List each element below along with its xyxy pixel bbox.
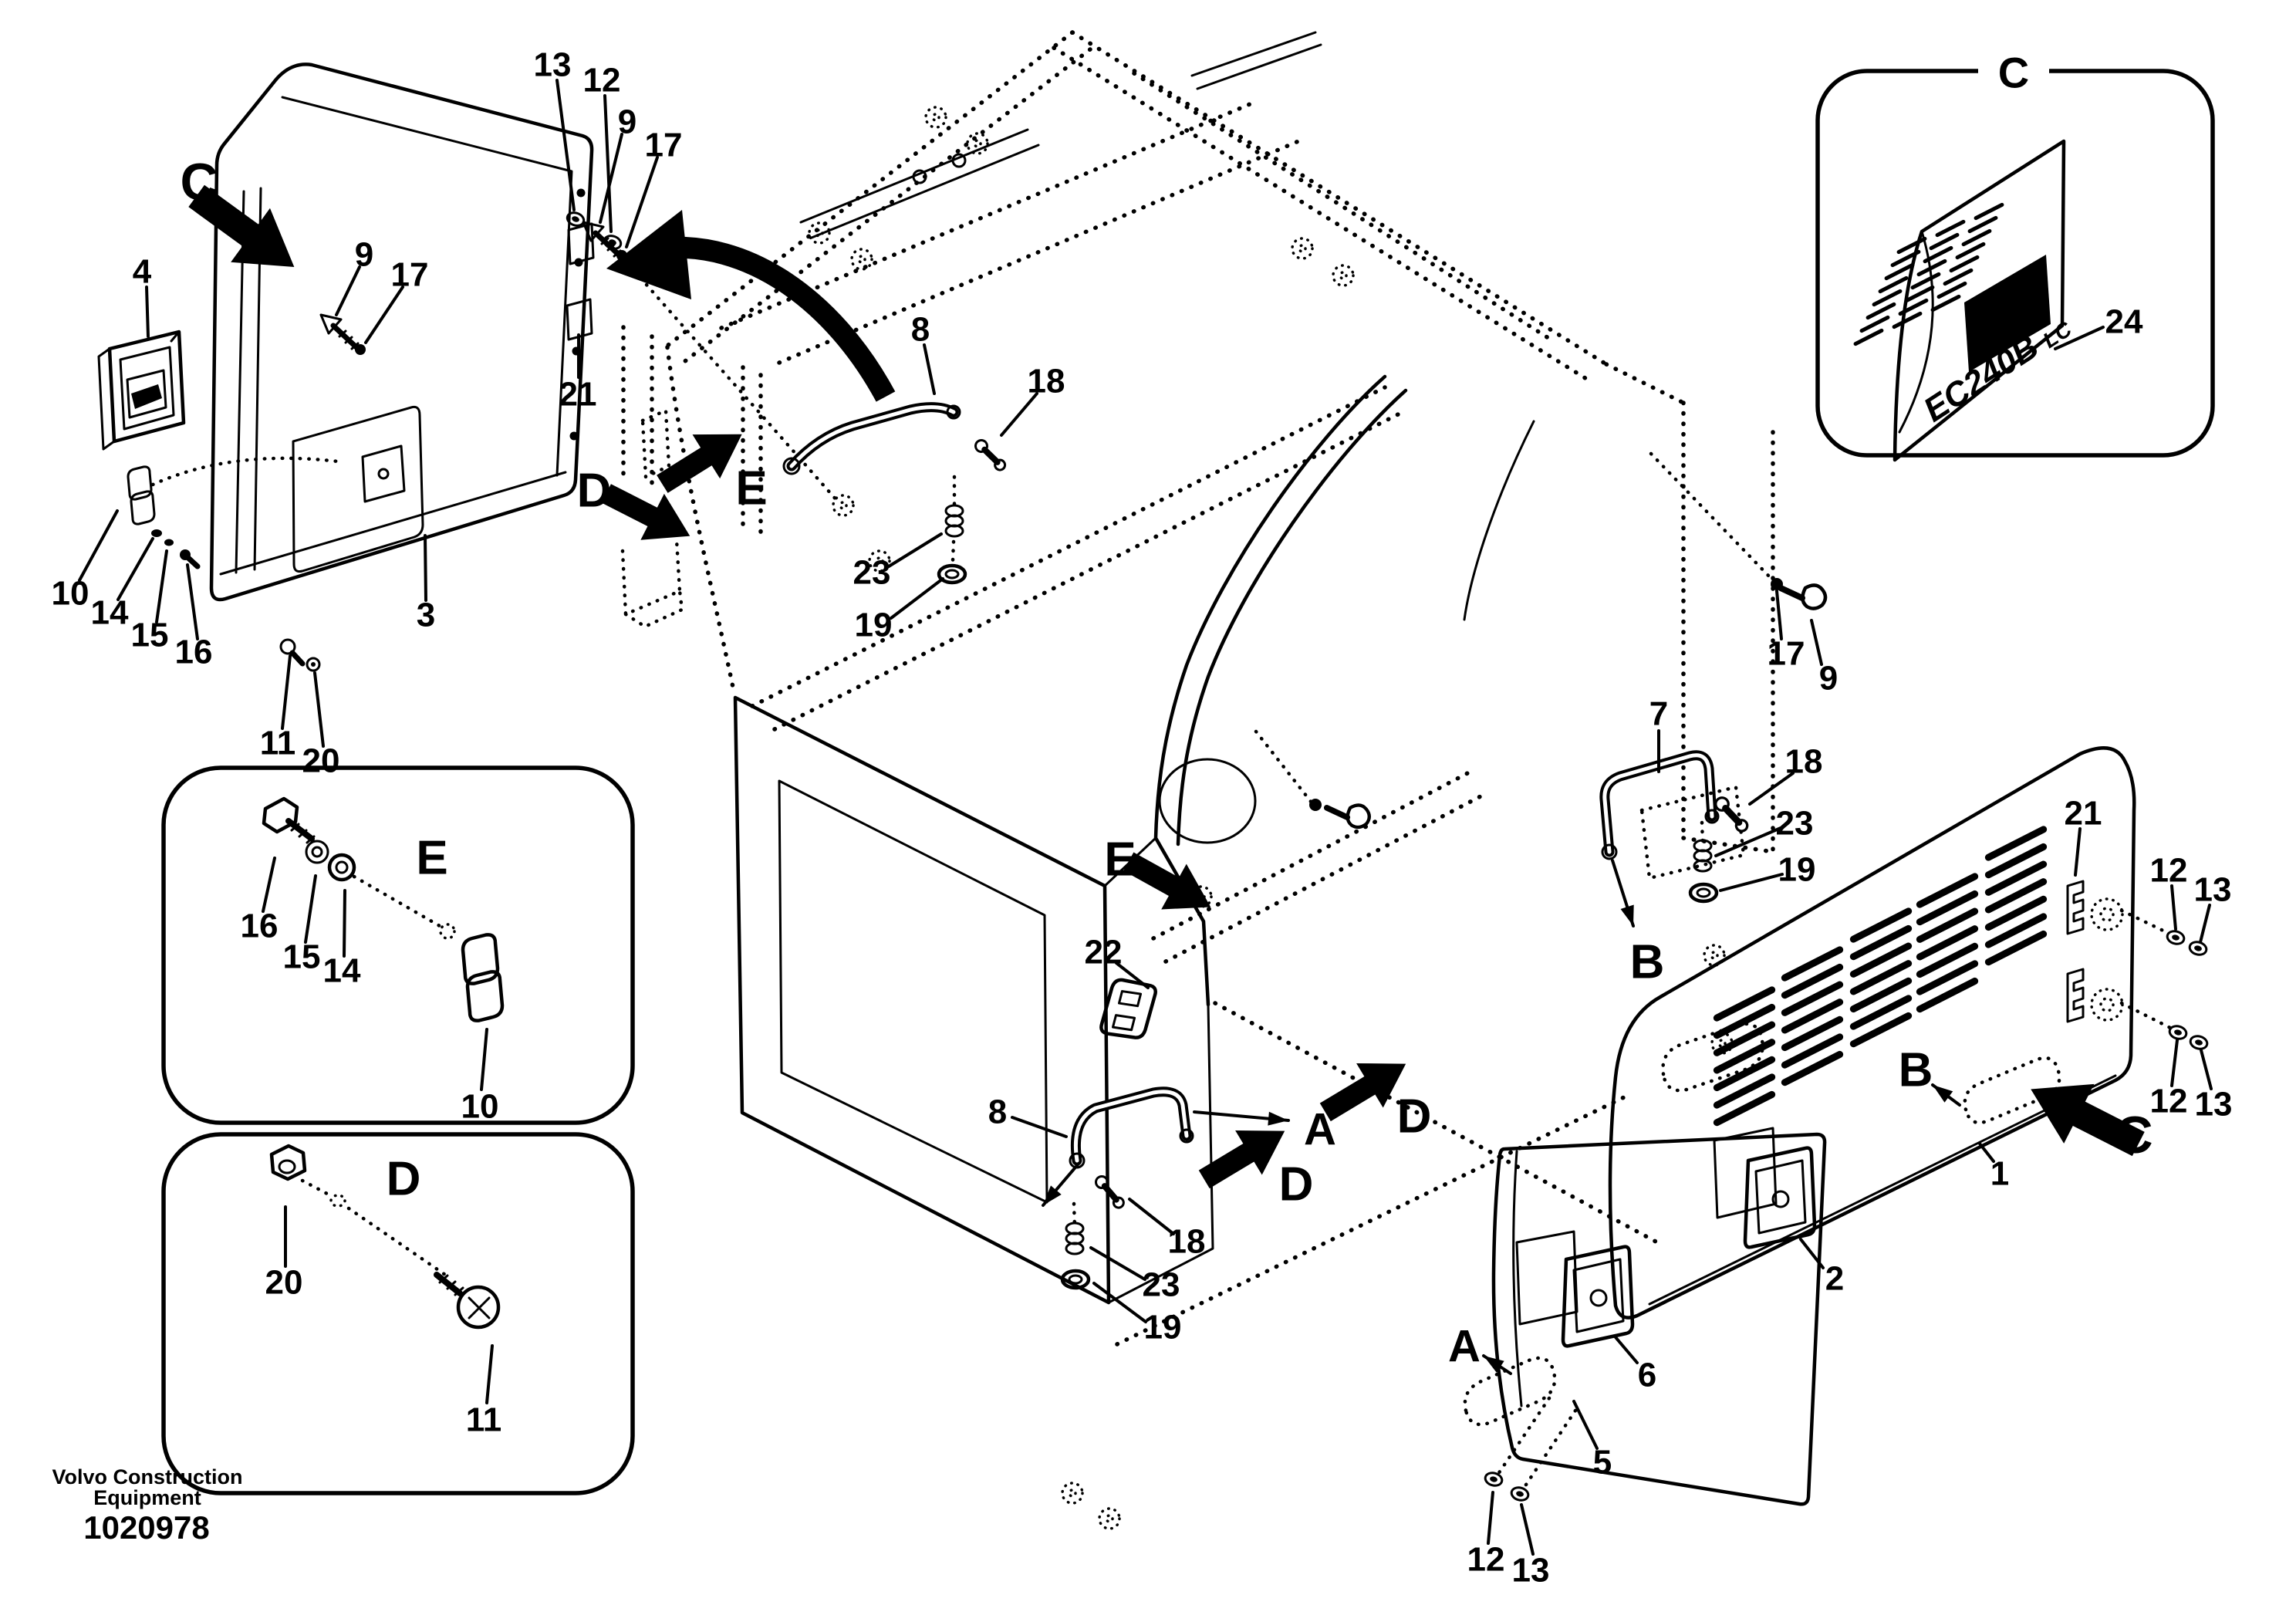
callout-11-door: 11 bbox=[260, 725, 296, 762]
callout-23-top: 23 bbox=[853, 554, 891, 592]
callout-13-panel-top: 13 bbox=[2194, 871, 2232, 909]
callout-19-bottom: 19 bbox=[1144, 1309, 1182, 1347]
callout-23-bottom: 23 bbox=[1143, 1266, 1180, 1304]
inset-view-E bbox=[164, 768, 633, 1123]
callout-21-door: 21 bbox=[559, 376, 597, 414]
leader-19-bottom bbox=[1094, 1283, 1146, 1322]
callout-13-door5: 13 bbox=[1512, 1552, 1550, 1590]
callout-17-door-top: 17 bbox=[645, 127, 683, 164]
grommet-19-right bbox=[1690, 884, 1717, 901]
leader-6 bbox=[1616, 1337, 1637, 1363]
door-panel-3 bbox=[211, 64, 593, 600]
pointer-B-handle-head bbox=[1621, 904, 1640, 928]
callout-2: 2 bbox=[1825, 1260, 1844, 1298]
callout-7: 7 bbox=[1649, 695, 1668, 733]
leader-12-panel-bot bbox=[2172, 1040, 2177, 1086]
latch-18-bottom bbox=[1091, 1175, 1129, 1209]
exploded-parts-diagram: EC240B LC bbox=[0, 0, 2296, 1622]
leader-9-right bbox=[1811, 620, 1822, 664]
callout-19-right: 19 bbox=[1778, 851, 1816, 889]
callout-23-right: 23 bbox=[1776, 805, 1814, 843]
callout-24: 24 bbox=[2105, 303, 2143, 341]
leader-12-door5 bbox=[1488, 1492, 1493, 1543]
brand-line2: Equipment bbox=[93, 1486, 201, 1509]
door-latch-4 bbox=[99, 332, 184, 449]
leader-17-door-face bbox=[366, 287, 403, 343]
leader-11-door bbox=[282, 656, 290, 728]
callout-22: 22 bbox=[1085, 934, 1123, 972]
leader-13-panel-top bbox=[2200, 905, 2210, 942]
callout-B-handle: B bbox=[1630, 936, 1665, 989]
leader-16-door bbox=[187, 565, 198, 639]
leader-13-door bbox=[557, 80, 574, 210]
handle-8-top bbox=[784, 406, 960, 474]
callout-18-right: 18 bbox=[1785, 743, 1823, 781]
leader-10-inset bbox=[481, 1029, 487, 1090]
callout-19-top: 19 bbox=[855, 607, 893, 644]
grommet-13-door5 bbox=[1510, 1485, 1529, 1502]
leader-5 bbox=[1574, 1401, 1597, 1448]
leader-14-door bbox=[118, 539, 153, 600]
leader-17-right bbox=[1777, 591, 1781, 639]
callout-10-door: 10 bbox=[52, 575, 89, 613]
callout-16-inset: 16 bbox=[241, 907, 279, 945]
leader-19-top bbox=[891, 579, 943, 618]
callout-18-top: 18 bbox=[1028, 363, 1065, 400]
panel-hinge-21-top bbox=[2068, 881, 2083, 934]
parts-diagram-page: EC240B LC bbox=[0, 0, 2296, 1622]
inset-view-C: EC240B LC bbox=[1818, 49, 2213, 460]
leader-19-right bbox=[1720, 874, 1782, 890]
grommet-12-panel-bot bbox=[2168, 1024, 2187, 1040]
pointer-A-door-head bbox=[1480, 1350, 1504, 1372]
leader-12-door bbox=[605, 96, 611, 231]
callout-view-C-door: C bbox=[180, 153, 218, 211]
leader-23-top bbox=[889, 534, 941, 566]
grommet-12-icon bbox=[603, 234, 623, 252]
leader-8-bottom bbox=[1012, 1117, 1066, 1137]
washer-14-icon bbox=[329, 855, 354, 880]
lock-washer-15-icon bbox=[306, 841, 328, 863]
door-panel-5 bbox=[1484, 1134, 1825, 1504]
callout-12-panel-top: 12 bbox=[2150, 852, 2188, 890]
leader-15-inset bbox=[306, 876, 316, 942]
leader-13-panel-bot bbox=[2201, 1050, 2211, 1089]
pin-17-icon-face bbox=[355, 344, 366, 355]
callout-21-panel: 21 bbox=[2065, 795, 2102, 833]
callout-13-panel-bot: 13 bbox=[2195, 1086, 2233, 1124]
callout-17-door-face: 17 bbox=[391, 256, 429, 294]
leader-13-door5 bbox=[1521, 1505, 1533, 1554]
callout-C-inset: C bbox=[1998, 49, 2029, 97]
callout-3: 3 bbox=[417, 596, 435, 634]
callout-20-door: 20 bbox=[302, 742, 340, 780]
catch-clip-10-icon bbox=[463, 934, 502, 1020]
callout-15-inset: 15 bbox=[283, 938, 321, 976]
machine-body-frame bbox=[623, 32, 1773, 1529]
nut-20-icon bbox=[272, 1146, 305, 1179]
grommet-13-panel-top bbox=[2188, 940, 2207, 956]
leader-14-inset bbox=[344, 890, 345, 956]
leader-8-top bbox=[924, 345, 934, 394]
pointer-A-mid-head bbox=[1268, 1112, 1289, 1127]
leader-15-door bbox=[157, 551, 167, 622]
callout-E-inset: E bbox=[416, 832, 447, 885]
leader-16-inset bbox=[263, 858, 275, 911]
callout-D-bot2: D bbox=[1279, 1158, 1314, 1211]
callout-9-right: 9 bbox=[1819, 660, 1838, 698]
bolt-16-icon bbox=[264, 799, 314, 843]
callout-13-door: 13 bbox=[534, 46, 572, 84]
leader-4 bbox=[147, 287, 148, 336]
handle-7 bbox=[1602, 755, 1744, 878]
callout-11-inset: 11 bbox=[466, 1401, 502, 1439]
side-panel-1 bbox=[1610, 748, 2209, 1317]
callout-9-door-top: 9 bbox=[618, 103, 636, 141]
leader-11-inset bbox=[487, 1346, 492, 1403]
callout-12-door: 12 bbox=[583, 62, 621, 100]
lock-washer-15 bbox=[164, 539, 174, 546]
bolt-11 bbox=[281, 640, 302, 664]
grommet-12-door5 bbox=[1484, 1471, 1503, 1487]
callout-view-D-mid: D bbox=[577, 465, 612, 518]
leader-12-panel-top bbox=[2172, 886, 2176, 929]
callout-20-inset: 20 bbox=[265, 1264, 303, 1302]
callout-5: 5 bbox=[1593, 1444, 1612, 1482]
leader-3 bbox=[425, 536, 426, 600]
callout-view-E-mid: E bbox=[735, 462, 767, 515]
callout-12-door5: 12 bbox=[1467, 1541, 1505, 1579]
knob-9-right bbox=[1781, 585, 1825, 608]
callout-16-door: 16 bbox=[175, 634, 213, 671]
callout-15-door: 15 bbox=[131, 617, 169, 654]
grommet-13-panel-bot bbox=[2189, 1034, 2208, 1050]
callout-6: 6 bbox=[1638, 1357, 1656, 1394]
callout-10-inset: 10 bbox=[461, 1088, 499, 1126]
figure-number: 1020978 bbox=[83, 1509, 210, 1546]
callout-D-bot1: D bbox=[1397, 1090, 1432, 1144]
callout-1: 1 bbox=[1990, 1155, 2009, 1193]
callout-9-door-face: 9 bbox=[355, 236, 373, 274]
nut-20 bbox=[307, 658, 319, 671]
leader-23-right bbox=[1716, 828, 1781, 856]
grommet-12-panel-top bbox=[2166, 929, 2185, 945]
callout-D-inset: D bbox=[387, 1153, 421, 1206]
handle-8-bottom bbox=[1070, 1092, 1193, 1168]
callout-17-right: 17 bbox=[1768, 635, 1805, 673]
latch-frame-6 bbox=[1517, 1232, 1577, 1324]
decal-panel-24: EC240B LC bbox=[1855, 141, 2076, 460]
spring-23-top bbox=[946, 505, 963, 536]
callout-14-inset: 14 bbox=[323, 952, 361, 990]
callout-8-bottom: 8 bbox=[988, 1093, 1007, 1131]
removal-arrow-curved bbox=[606, 210, 886, 397]
pin-17-center bbox=[1309, 799, 1322, 811]
spring-23-bottom bbox=[1066, 1223, 1083, 1254]
leader-20-door bbox=[315, 673, 323, 746]
latch-18-top bbox=[972, 439, 1008, 471]
brand-line1: Volvo Construction bbox=[52, 1465, 243, 1489]
view-direction-arrows bbox=[177, 169, 2153, 1374]
leader-10-door bbox=[79, 511, 117, 580]
leader-21-panel bbox=[2075, 829, 2080, 875]
door-hinge-21 bbox=[567, 224, 593, 340]
pin-17-right bbox=[1771, 578, 1783, 590]
leader-23-bottom bbox=[1091, 1248, 1145, 1279]
washer-14 bbox=[151, 529, 162, 537]
callout-18-bottom: 18 bbox=[1168, 1223, 1206, 1261]
leader-18-bottom bbox=[1129, 1199, 1173, 1234]
leader-9-door-face bbox=[336, 267, 360, 315]
callout-14-door: 14 bbox=[91, 594, 129, 632]
screw-9-icon-face bbox=[321, 315, 358, 349]
callout-B-panel: B bbox=[1899, 1044, 1933, 1097]
callout-E-latch: E bbox=[1104, 833, 1136, 887]
bolt-11-icon bbox=[437, 1275, 498, 1327]
door-latch-6 bbox=[1563, 1247, 1633, 1347]
callout-A-door: A bbox=[1448, 1322, 1481, 1372]
callout-8-top: 8 bbox=[911, 311, 930, 349]
callout-4: 4 bbox=[133, 253, 152, 291]
panel-hinge-21-bottom bbox=[2068, 969, 2083, 1022]
callout-12-panel-bot: 12 bbox=[2150, 1083, 2188, 1120]
louver-vents bbox=[1717, 830, 2043, 1123]
callout-view-C-panel: C bbox=[2115, 1106, 2152, 1164]
callout-A-mid: A bbox=[1304, 1105, 1336, 1155]
knob-9-center bbox=[1327, 805, 1369, 827]
title-block: Volvo Construction Equipment 1020978 bbox=[52, 1465, 243, 1546]
